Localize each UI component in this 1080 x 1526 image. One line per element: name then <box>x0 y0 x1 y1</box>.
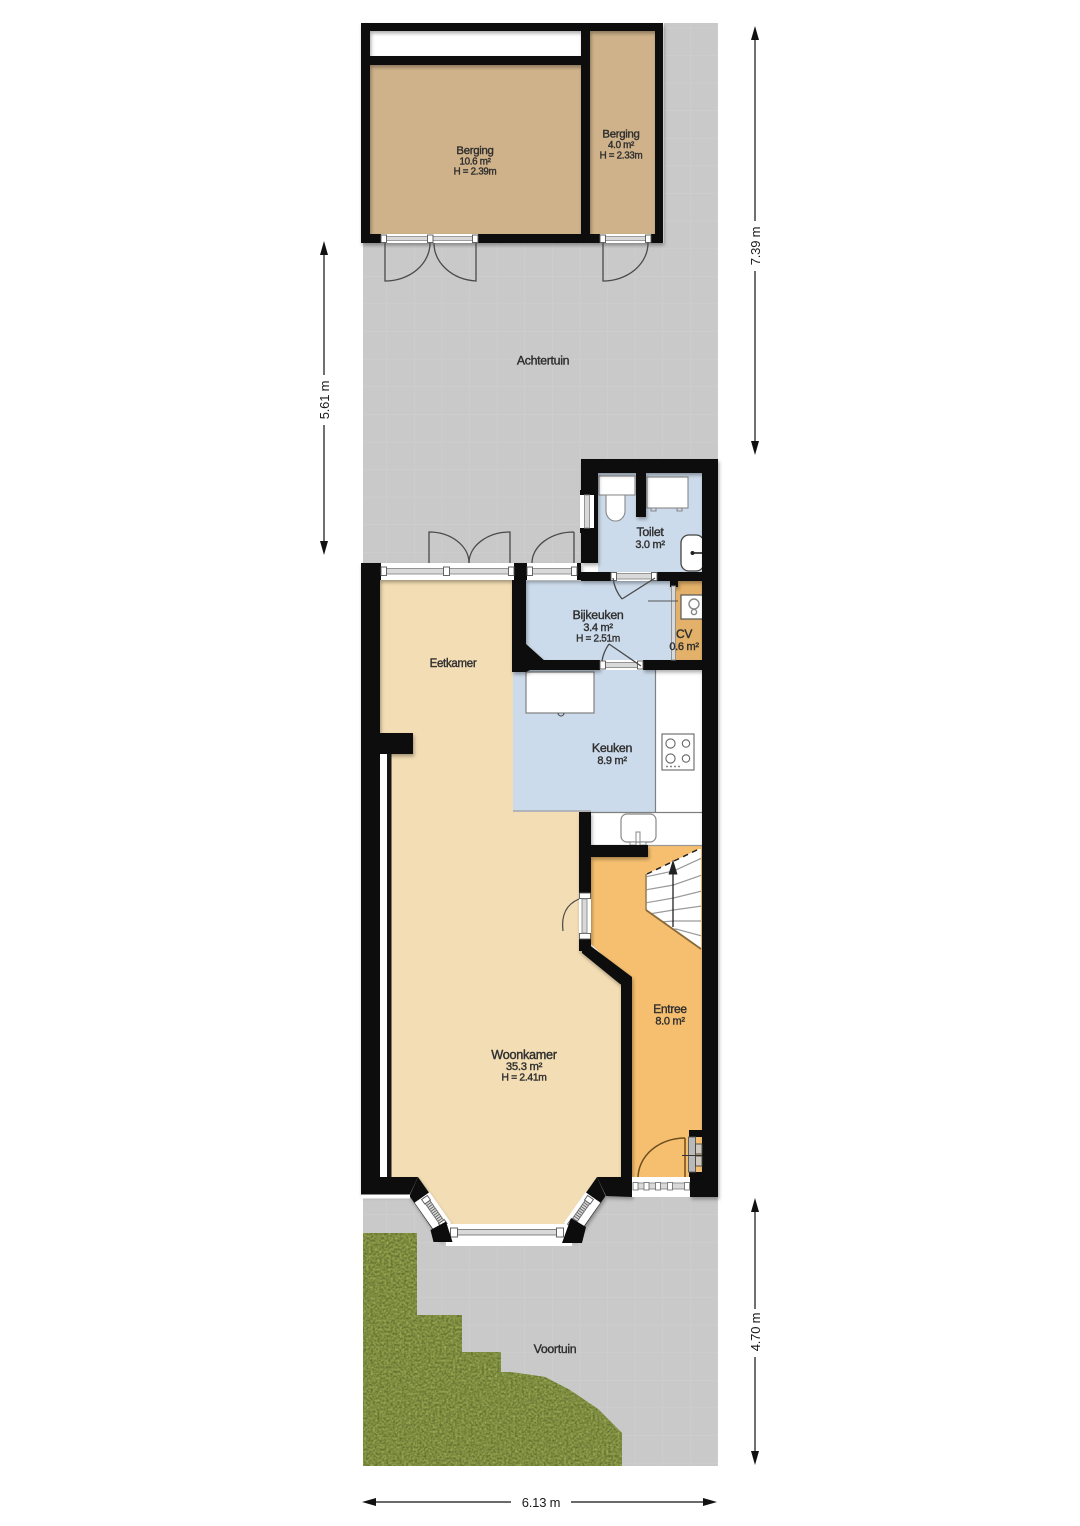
svg-text:Woonkamer: Woonkamer <box>491 1048 558 1062</box>
svg-text:Bijkeuken: Bijkeuken <box>572 608 623 622</box>
svg-text:Toilet: Toilet <box>636 525 664 539</box>
svg-text:0.6 m²: 0.6 m² <box>669 641 699 653</box>
svg-text:Eetkamer: Eetkamer <box>430 658 477 670</box>
svg-text:Berging: Berging <box>602 129 639 141</box>
svg-text:H = 2.33m: H = 2.33m <box>600 151 643 162</box>
svg-text:Berging: Berging <box>456 145 493 157</box>
svg-text:H = 2.39m: H = 2.39m <box>454 167 497 178</box>
svg-text:3.0 m²: 3.0 m² <box>635 539 665 551</box>
svg-text:8.0 m²: 8.0 m² <box>655 1016 685 1028</box>
svg-text:3.4 m²: 3.4 m² <box>583 622 613 634</box>
svg-text:6.13 m: 6.13 m <box>522 1495 561 1510</box>
svg-text:CV: CV <box>676 627 692 641</box>
svg-text:Entree: Entree <box>653 1002 687 1016</box>
svg-text:Achtertuin: Achtertuin <box>517 354 570 368</box>
svg-text:7.39 m: 7.39 m <box>748 227 763 266</box>
svg-text:H = 2.51m: H = 2.51m <box>576 634 620 645</box>
svg-text:Voortuin: Voortuin <box>534 1342 577 1356</box>
svg-text:5.61 m: 5.61 m <box>317 381 332 420</box>
svg-text:Keuken: Keuken <box>592 741 633 755</box>
svg-text:4.0 m²: 4.0 m² <box>608 140 635 151</box>
svg-text:35.3 m²: 35.3 m² <box>506 1061 543 1073</box>
svg-text:H = 2.41m: H = 2.41m <box>501 1073 546 1084</box>
svg-text:8.9 m²: 8.9 m² <box>597 755 627 767</box>
svg-text:4.70 m: 4.70 m <box>748 1313 763 1352</box>
